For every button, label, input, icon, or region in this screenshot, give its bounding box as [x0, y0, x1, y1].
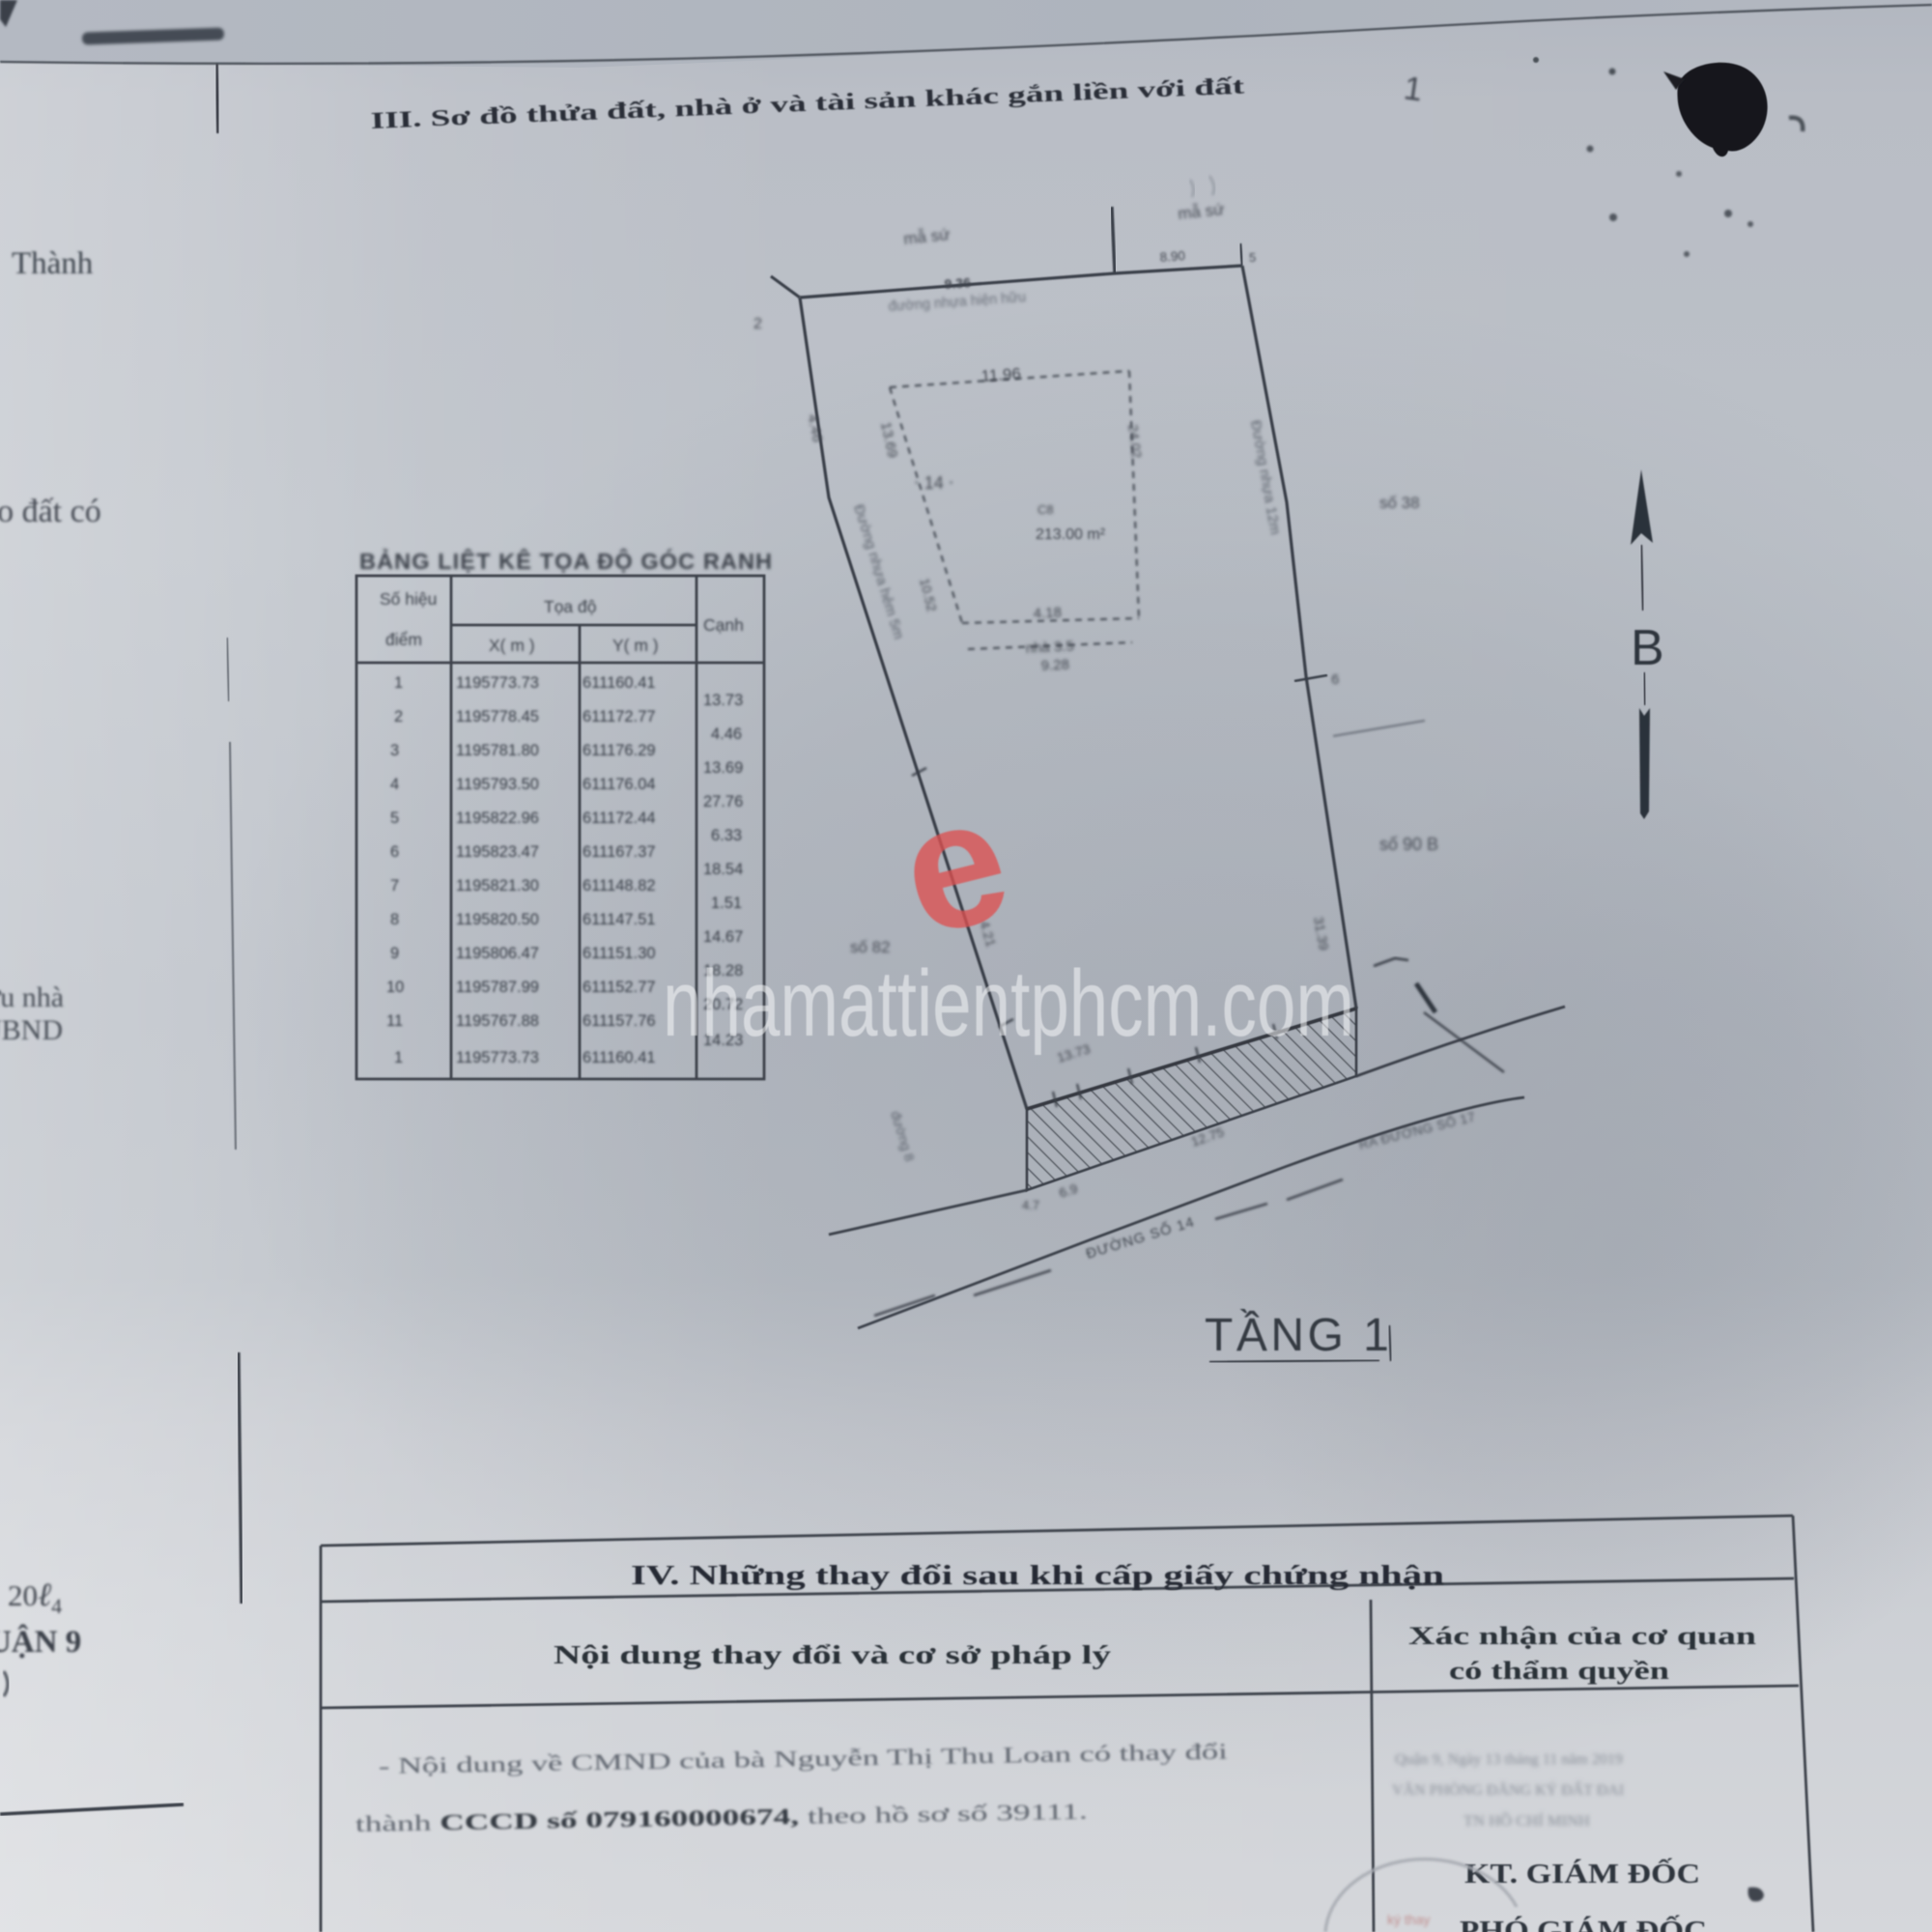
svg-text:8.90: 8.90 — [1159, 248, 1185, 265]
svg-text:611172.44: 611172.44 — [582, 810, 656, 827]
svg-text:9.36: 9.36 — [944, 274, 972, 292]
svg-text:611172.77: 611172.77 — [582, 708, 656, 725]
svg-text:4: 4 — [390, 776, 399, 793]
svg-text:611167.37: 611167.37 — [582, 843, 656, 861]
svg-text:BẢNG LIỆT KÊ TỌA ĐỘ GÓC RANH: BẢNG LIỆT KÊ TỌA ĐỘ GÓC RANH — [359, 547, 773, 574]
svg-text:5: 5 — [390, 810, 399, 827]
svg-text:IV. Những thay đổi sau khi cấp: IV. Những thay đổi sau khi cấp giấy chứn… — [631, 1560, 1444, 1591]
svg-text:1195820.50: 1195820.50 — [456, 911, 539, 928]
svg-text:Số hiệu: Số hiệu — [380, 589, 437, 609]
svg-text:2: 2 — [753, 316, 762, 332]
svg-text:Xác nhận của cơ quan: Xác nhận của cơ quan — [1408, 1622, 1757, 1650]
svg-text:1195773.73: 1195773.73 — [456, 1049, 539, 1066]
svg-text:ao đất có: ao đất có — [0, 494, 101, 529]
svg-text:1.51: 1.51 — [711, 895, 742, 912]
svg-text:18.54: 18.54 — [703, 861, 743, 878]
svg-text:Tọa độ: Tọa độ — [544, 597, 596, 616]
svg-text:1: 1 — [394, 1049, 403, 1066]
svg-text:Quận 9, Ngày 13 tháng 11 năm 2: Quận 9, Ngày 13 tháng 11 năm 2019 — [1395, 1751, 1623, 1768]
svg-text:1195787.99: 1195787.99 — [456, 979, 539, 996]
svg-text:611160.41: 611160.41 — [582, 1049, 656, 1066]
svg-text:6: 6 — [1331, 671, 1339, 688]
svg-text:8: 8 — [390, 911, 399, 928]
svg-text:13.69: 13.69 — [703, 759, 743, 777]
svg-text:số 38: số 38 — [1379, 494, 1420, 512]
svg-text:9.28: 9.28 — [1040, 656, 1069, 674]
svg-text:1195781.80: 1195781.80 — [456, 742, 539, 759]
svg-text:7: 7 — [390, 877, 399, 895]
svg-text:UẬN 9: UẬN 9 — [0, 1623, 81, 1660]
svg-text:611148.82: 611148.82 — [582, 877, 656, 895]
svg-text:1195767.88: 1195767.88 — [456, 1012, 539, 1030]
svg-text:1195793.50: 1195793.50 — [456, 776, 539, 793]
svg-text:4.46: 4.46 — [711, 725, 742, 743]
svg-text:Nội dung thay đổi và cơ sở phá: Nội dung thay đổi và cơ sở pháp lý — [554, 1640, 1112, 1669]
svg-text:4.7: 4.7 — [1022, 1198, 1039, 1212]
svg-text:10: 10 — [386, 979, 404, 996]
svg-text:Y( m ): Y( m ) — [612, 636, 659, 655]
svg-text:TN HỒ CHÍ MINH: TN HỒ CHÍ MINH — [1463, 1811, 1590, 1830]
svg-text:VĂN PHÒNG ĐĂNG KÝ ĐẤT ĐAI: VĂN PHÒNG ĐĂNG KÝ ĐẤT ĐAI — [1392, 1780, 1624, 1799]
svg-text:số 90 B: số 90 B — [1379, 835, 1438, 854]
svg-text:611176.04: 611176.04 — [582, 776, 656, 793]
svg-text:ưu nhà: ưu nhà — [0, 981, 64, 1013]
svg-text:B: B — [1631, 620, 1664, 676]
svg-text:1195823.47: 1195823.47 — [456, 843, 539, 861]
svg-text:1195778.45: 1195778.45 — [456, 708, 539, 725]
svg-text:6.33: 6.33 — [711, 827, 742, 844]
svg-text:nhamattientphcm.com: nhamattientphcm.com — [663, 951, 1354, 1056]
svg-text:ký thay: ký thay — [1387, 1912, 1430, 1927]
svg-text:6: 6 — [390, 843, 399, 861]
svg-text:4.18: 4.18 — [1033, 604, 1062, 622]
svg-text:213.00 m²: 213.00 m² — [1036, 526, 1106, 543]
svg-text:có thẩm quyền: có thẩm quyền — [1449, 1657, 1670, 1685]
svg-text:1195822.96: 1195822.96 — [456, 810, 539, 827]
svg-text:611157.76: 611157.76 — [582, 1012, 656, 1030]
svg-text:611152.77: 611152.77 — [582, 979, 656, 996]
svg-text:11: 11 — [386, 1012, 403, 1030]
svg-text:nhà 3.5: nhà 3.5 — [1025, 638, 1074, 657]
svg-text:14.67: 14.67 — [703, 928, 743, 946]
svg-text:5: 5 — [1249, 250, 1256, 265]
svg-text:1195806.47: 1195806.47 — [456, 945, 539, 962]
svg-text:611151.30: 611151.30 — [582, 945, 656, 962]
svg-text:X( m ): X( m ) — [489, 636, 535, 655]
svg-text:2: 2 — [394, 708, 403, 725]
svg-text:TẦNG 1: TẦNG 1 — [1205, 1309, 1392, 1361]
svg-text:điểm: điểm — [385, 630, 422, 649]
svg-text:1: 1 — [394, 674, 403, 692]
svg-text:9: 9 — [390, 945, 399, 962]
svg-text:UBND: UBND — [0, 1014, 63, 1046]
svg-text:13.73: 13.73 — [703, 692, 743, 709]
svg-text:PHÓ GIÁM ĐỐC: PHÓ GIÁM ĐỐC — [1460, 1914, 1707, 1932]
svg-text:1195821.30: 1195821.30 — [456, 877, 539, 895]
svg-text:Cạnh: Cạnh — [703, 615, 744, 635]
svg-text:611176.29: 611176.29 — [582, 742, 656, 759]
svg-text:611147.51: 611147.51 — [582, 911, 656, 928]
svg-text:Thành: Thành — [12, 246, 94, 281]
svg-text:27.76: 27.76 — [703, 793, 743, 810]
svg-text:C8: C8 — [1037, 502, 1054, 517]
svg-text:11.96: 11.96 — [980, 364, 1022, 385]
svg-text:⋅ 14 ⋅: ⋅ 14 ⋅ — [914, 473, 953, 493]
svg-text:611160.41: 611160.41 — [582, 674, 656, 692]
svg-text:1195773.73: 1195773.73 — [456, 674, 539, 692]
svg-text:3: 3 — [390, 742, 399, 759]
